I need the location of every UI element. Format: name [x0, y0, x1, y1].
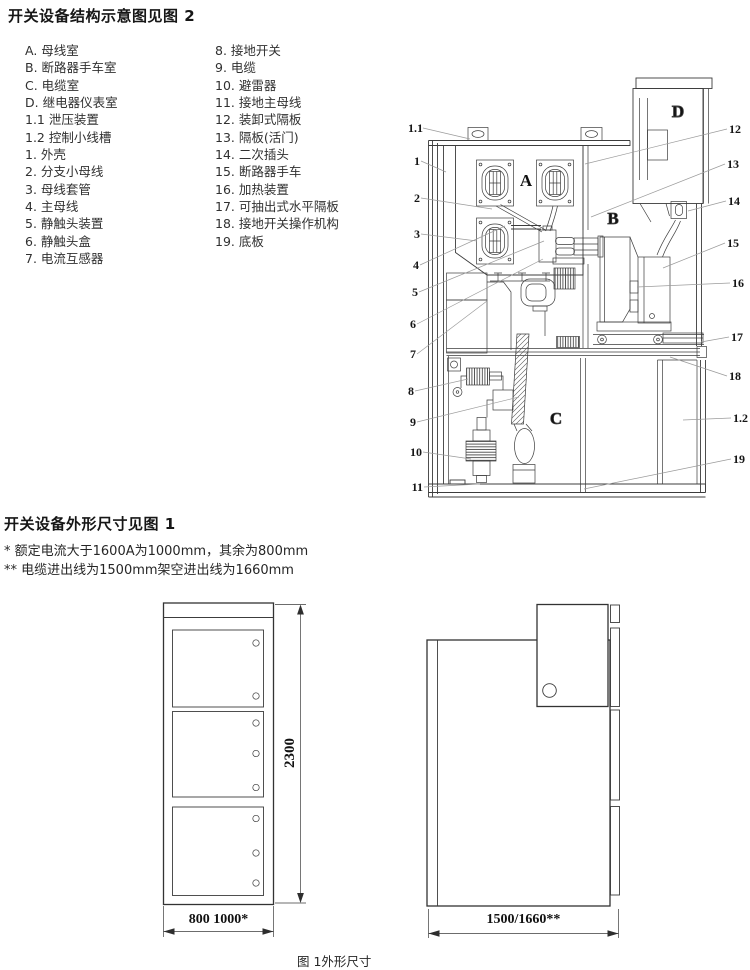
side-view: 1500/1660** — [427, 605, 620, 939]
compartment-label-d: D — [672, 102, 684, 121]
legend-item: 7. 电流互感器 — [25, 250, 118, 267]
legend-column-1: A. 母线室 B. 断路器手车室 C. 电缆室 D. 继电器仪表室 1.1 泄压… — [25, 42, 118, 267]
legend-item: 18. 接地开关操作机构 — [215, 215, 339, 232]
legend-item: 13. 隔板(活门) — [215, 129, 339, 146]
legend-column-2: 8. 接地开关 9. 电缆 10. 避雷器 11. 接地主母线 12. 装卸式隔… — [215, 42, 339, 250]
relay-box — [537, 605, 608, 707]
callout-13: 13 — [727, 157, 739, 171]
dim-height-label: 2300 — [282, 738, 298, 768]
surge-arrester — [466, 418, 496, 483]
compartment-label-b: B — [607, 209, 618, 228]
busbar-bushing — [537, 160, 574, 206]
door-panel — [173, 712, 264, 798]
legend-item: 17. 可抽出式水平隔板 — [215, 198, 339, 215]
page: 开关设备结构示意图见图 2 A. 母线室 B. 断路器手车室 C. 电缆室 D.… — [0, 0, 750, 970]
fig1-caption: 图 1外形尺寸 — [297, 951, 371, 970]
leader-lines — [415, 128, 731, 489]
legend-item: 16. 加热装置 — [215, 181, 339, 198]
current-transformer-boxes — [447, 273, 512, 353]
footnote-1: * 额定电流大于1600A为1000mm，其余为800mm — [4, 540, 308, 559]
legend-item: 1.2 控制小线槽 — [25, 129, 118, 146]
dim-width-label: 800 1000* — [189, 912, 249, 927]
callout-7: 7 — [410, 347, 416, 361]
earthing-switch — [467, 368, 490, 385]
fig2-title: 开关设备结构示意图见图 2 — [8, 5, 195, 26]
legend-item: 19. 底板 — [215, 233, 339, 250]
callout-15: 15 — [727, 236, 739, 250]
legend-item: 8. 接地开关 — [215, 42, 339, 59]
callout-10: 10 — [410, 445, 422, 459]
callout-1-2: 1.2 — [733, 411, 748, 425]
legend-item: 6. 静触头盒 — [25, 233, 118, 250]
legend-item: 12. 装卸式隔板 — [215, 111, 339, 128]
legend-item: 5. 静触头装置 — [25, 215, 118, 232]
busbar-bushing — [477, 218, 514, 264]
legend-item: 1.1 泄压装置 — [25, 111, 118, 128]
compartment-label-a: A — [520, 171, 533, 190]
figure2-structure-diagram: A — [395, 70, 750, 505]
legend-item: 3. 母线套管 — [25, 181, 118, 198]
figure1-outline-drawing: 2300 800 1000* — [140, 595, 685, 945]
horizontal-partition — [447, 337, 707, 358]
busbar-bushing — [477, 160, 514, 206]
legend-item: C. 电缆室 — [25, 77, 118, 94]
door-panel — [173, 630, 264, 707]
legend-item: D. 继电器仪表室 — [25, 94, 118, 111]
cable-assembly — [512, 334, 536, 483]
callout-2: 2 — [414, 191, 420, 205]
legend-item: 14. 二次插头 — [215, 146, 339, 163]
compartment-label-c: C — [550, 409, 562, 428]
callout-18: 18 — [729, 369, 741, 383]
callout-1-1: 1.1 — [408, 121, 423, 135]
callout-19: 19 — [733, 452, 745, 466]
legend-item: 4. 主母线 — [25, 198, 118, 215]
callout-6: 6 — [410, 317, 416, 331]
callout-11: 11 — [412, 480, 423, 494]
callout-8: 8 — [408, 384, 414, 398]
secondary-plug — [640, 202, 687, 258]
legend-item: B. 断路器手车室 — [25, 59, 118, 76]
callout-17: 17 — [731, 330, 743, 344]
legend-item: 1. 外壳 — [25, 146, 118, 163]
callout-5: 5 — [412, 285, 418, 299]
width-dimension: 800 1000* — [164, 906, 274, 937]
callout-4: 4 — [413, 258, 419, 272]
callout-12: 12 — [729, 122, 741, 136]
breaker-truck: B — [593, 209, 704, 345]
legend-item: 9. 电缆 — [215, 59, 339, 76]
static-contact-assembly — [539, 226, 603, 264]
compartment-c-cable-room: C — [448, 356, 698, 493]
callout-3: 3 — [414, 227, 420, 241]
legend-item: 15. 断路器手车 — [215, 163, 339, 180]
depth-dimension: 1500/1660** — [429, 909, 619, 938]
callout-16: 16 — [732, 276, 744, 290]
dim-depth-label: 1500/1660** — [487, 912, 561, 927]
legend-item: A. 母线室 — [25, 42, 118, 59]
height-dimension: 2300 — [275, 605, 306, 904]
fig1-title: 开关设备外形尺寸见图 1 — [4, 513, 176, 534]
front-view: 2300 800 1000* — [164, 603, 307, 937]
rear-panels — [611, 605, 620, 895]
legend-item: 10. 避雷器 — [215, 77, 339, 94]
callout-14: 14 — [728, 194, 740, 208]
door-knobs — [253, 640, 259, 886]
pressure-relief-lugs — [468, 128, 602, 141]
callout-1: 1 — [414, 154, 420, 168]
door-panel — [173, 807, 264, 896]
operating-mechanism — [490, 268, 575, 336]
callout-9: 9 — [410, 415, 416, 429]
legend-item: 11. 接地主母线 — [215, 94, 339, 111]
footnote-2: ** 电缆进出线为1500mm架空进出线为1660mm — [4, 559, 294, 578]
legend-item: 2. 分支小母线 — [25, 163, 118, 180]
